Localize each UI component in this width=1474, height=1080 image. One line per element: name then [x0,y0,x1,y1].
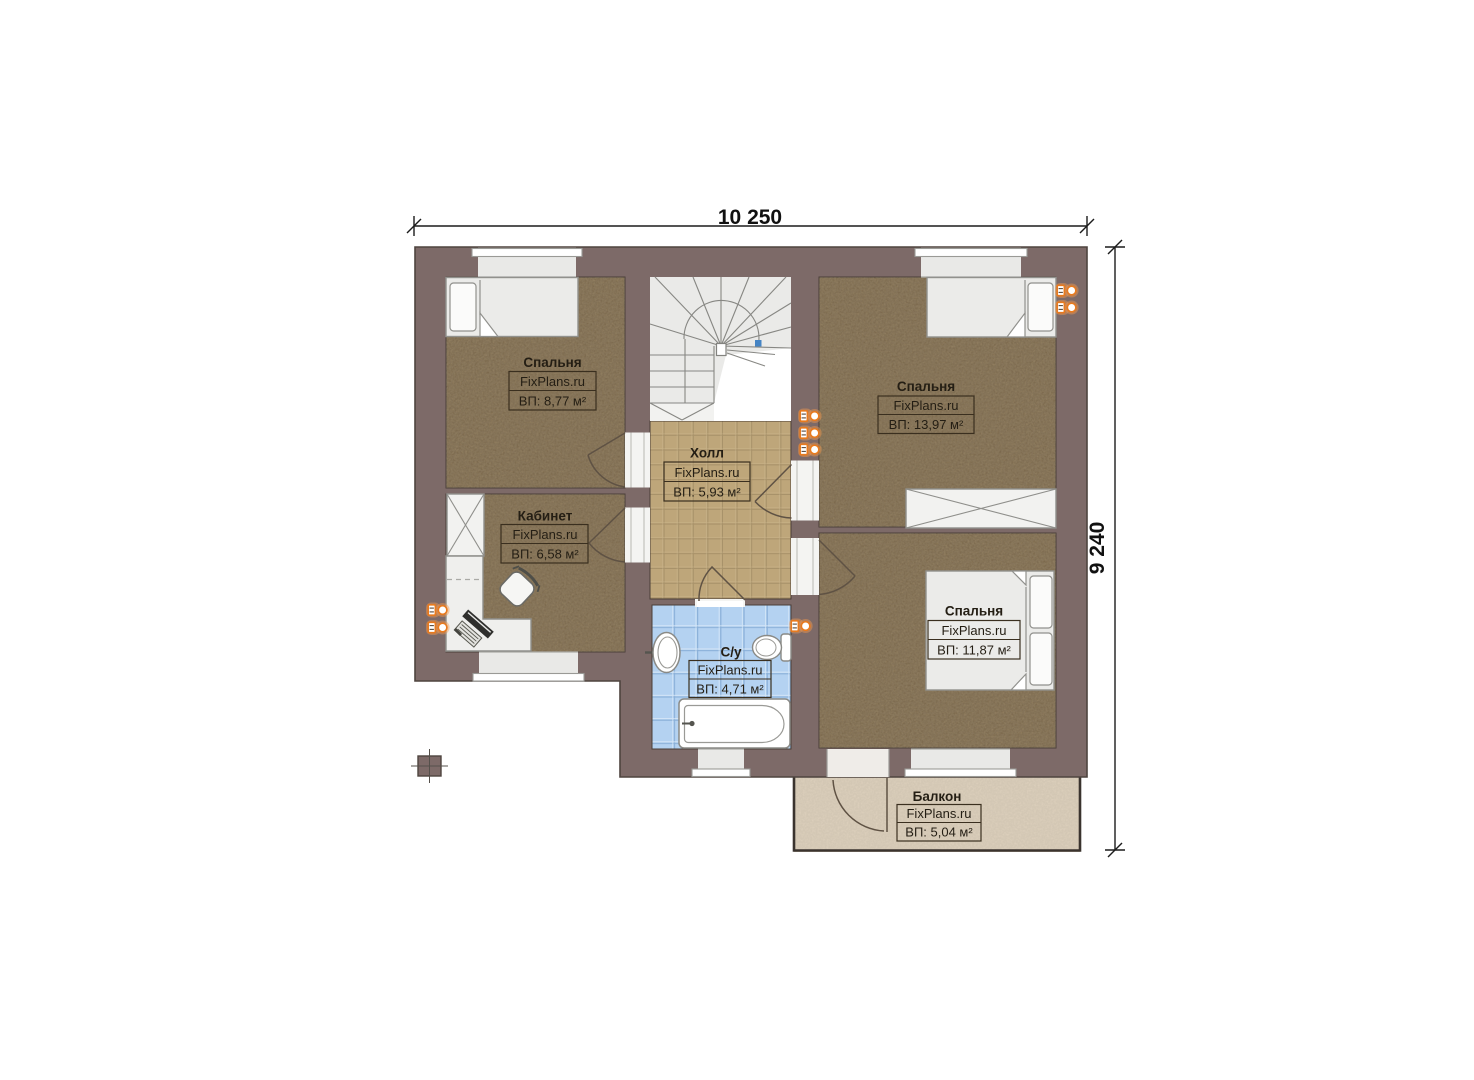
svg-text:Спальня: Спальня [945,604,1003,619]
svg-text:Балкон: Балкон [913,789,962,804]
svg-text:С/у: С/у [720,645,742,660]
svg-text:FixPlans.ru: FixPlans.ru [941,623,1006,638]
svg-text:FixPlans.ru: FixPlans.ru [906,806,971,821]
svg-text:ВП: 5,04 м²: ВП: 5,04 м² [905,825,973,840]
svg-text:FixPlans.ru: FixPlans.ru [520,374,585,389]
svg-text:Спальня: Спальня [897,379,955,394]
svg-text:FixPlans.ru: FixPlans.ru [893,398,958,413]
svg-text:ВП: 8,77 м²: ВП: 8,77 м² [519,394,587,409]
svg-text:Холл: Холл [690,446,724,461]
svg-text:ВП: 4,71 м²: ВП: 4,71 м² [696,682,764,697]
svg-text:ВП: 13,97 м²: ВП: 13,97 м² [889,417,964,432]
svg-text:ВП: 11,87 м²: ВП: 11,87 м² [937,643,1011,658]
svg-text:FixPlans.ru: FixPlans.ru [512,527,577,542]
svg-text:ВП: 5,93 м²: ВП: 5,93 м² [673,485,741,500]
svg-text:Спальня: Спальня [523,355,581,370]
svg-text:ВП: 6,58 м²: ВП: 6,58 м² [511,547,579,562]
svg-text:Кабинет: Кабинет [518,509,573,524]
svg-text:FixPlans.ru: FixPlans.ru [697,663,762,678]
svg-text:10 250: 10 250 [718,206,782,229]
svg-text:FixPlans.ru: FixPlans.ru [674,465,739,480]
svg-text:9 240: 9 240 [1086,522,1109,575]
